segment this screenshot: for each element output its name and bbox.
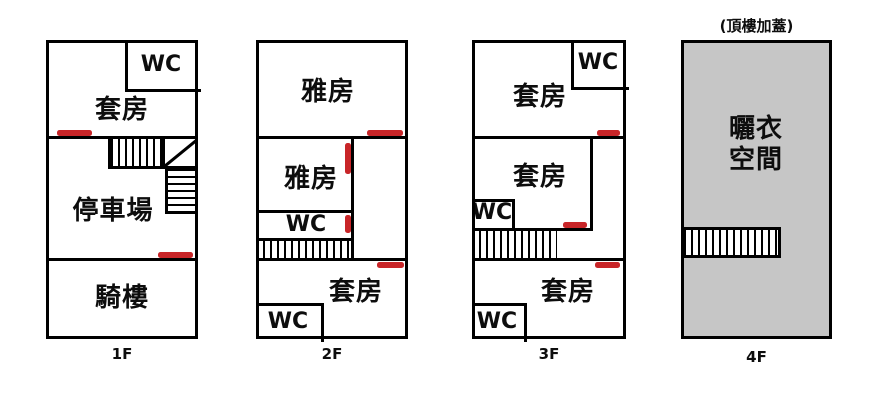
floor-outline-4f [681, 40, 832, 339]
floor-4f: 曬衣 空間 [681, 40, 832, 339]
floor-1f: WC 套房 停車場 騎樓 [46, 40, 198, 339]
room-label-2f-room-mid: 雅房 [284, 166, 338, 192]
door-marker-1f-suite [57, 130, 92, 136]
door-marker-2f-suite [377, 262, 404, 268]
door-marker-3f-top [597, 130, 620, 136]
room-label-2f-suite: 套房 [329, 279, 383, 305]
room-label-1f-suite: 套房 [95, 97, 149, 123]
floor-3f: WC 套房 套房 WC 套房 WC [472, 40, 626, 339]
drying-space-line1: 曬衣 [729, 114, 783, 145]
room-label-3f-wc-mid: WC [472, 202, 512, 224]
wall-3f-divider-top [472, 136, 626, 139]
stairs-diagonal-line [165, 139, 198, 166]
room-label-1f-wc: WC [141, 54, 181, 76]
room-label-2f-wc-bottom: WC [268, 311, 308, 333]
room-label-3f-wc-bottom: WC [477, 311, 517, 333]
wall-3f-vertical [590, 136, 593, 231]
door-marker-3f-suite-bottom [595, 262, 620, 268]
wall-3f-divider-bottom [472, 258, 626, 261]
stairs-1f-landing [165, 136, 198, 169]
wall-2f-divider-bottom [256, 258, 408, 261]
drying-space-line2: 空間 [729, 145, 783, 176]
room-label-1f-arcade: 騎樓 [95, 285, 149, 311]
room-label-3f-wc-top: WC [578, 52, 618, 74]
stairs-1f-run [108, 136, 165, 169]
room-label-3f-suite-bottom: 套房 [541, 279, 595, 305]
wall-2f-divider-top [256, 136, 408, 139]
room-label-3f-suite-top: 套房 [513, 84, 567, 110]
floor-label-3f: 3F [472, 345, 626, 363]
door-marker-2f-room-mid [345, 143, 351, 174]
door-marker-3f-suite-mid [563, 222, 587, 228]
floor-label-1f: 1F [46, 345, 198, 363]
stairs-1f-run-down [165, 169, 198, 214]
room-label-4f-drying-space: 曬衣 空間 [729, 114, 783, 176]
rooftop-annotation: (頂樓加蓋) [681, 15, 832, 36]
room-label-2f-wc-mid: WC [286, 214, 326, 236]
floorplan-canvas: WC 套房 停車場 騎樓 1F 雅房 雅房 [0, 0, 888, 409]
door-marker-2f-wc-mid [345, 215, 351, 233]
wall-1f-divider-bottom [46, 258, 198, 261]
stairs-3f [472, 231, 557, 258]
floor-label-2f: 2F [256, 345, 408, 363]
floor-label-4f: 4F [681, 348, 832, 366]
floor-2f: 雅房 雅房 WC 套房 WC [256, 40, 408, 339]
door-marker-2f-top [367, 130, 403, 136]
stairs-4f [681, 227, 781, 258]
room-label-1f-parking: 停車場 [72, 198, 153, 224]
room-label-3f-suite-mid: 套房 [513, 164, 567, 190]
room-label-2f-room-top: 雅房 [301, 79, 355, 105]
